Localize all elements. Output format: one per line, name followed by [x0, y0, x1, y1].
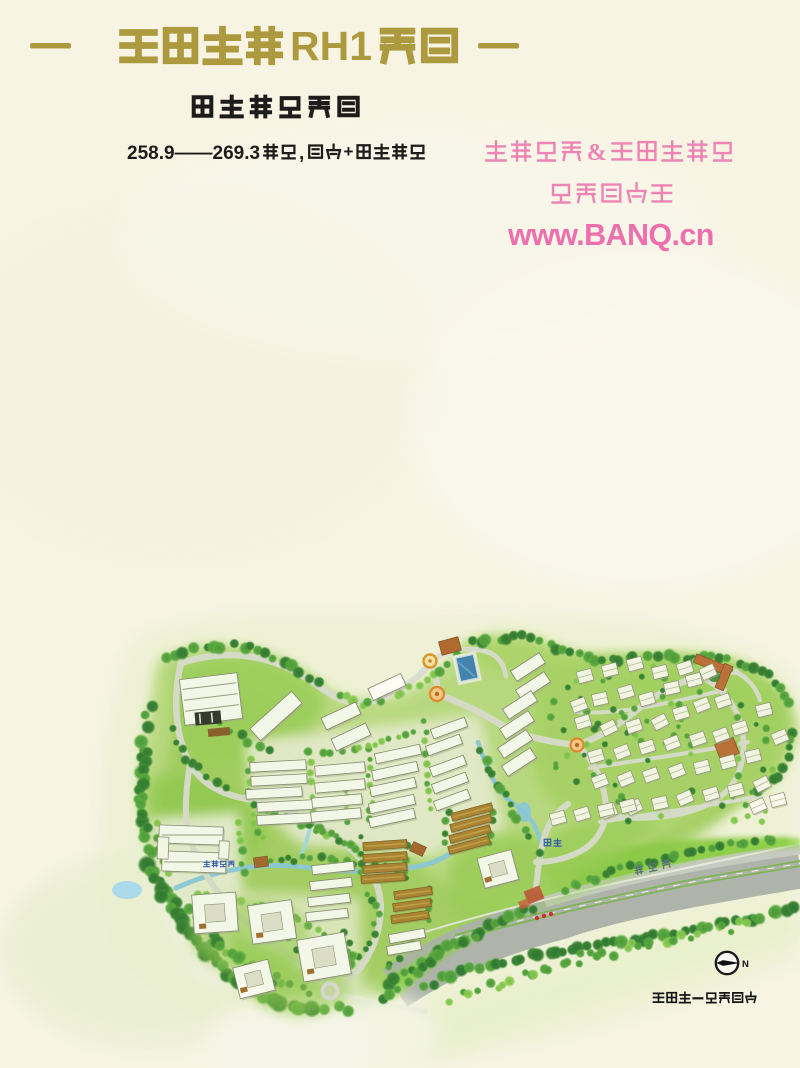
svg-text:&: & — [587, 140, 607, 166]
svg-text:258.9——269.3: 258.9——269.3 — [127, 143, 260, 164]
svg-text:www.BANQ.cn: www.BANQ.cn — [507, 218, 714, 252]
svg-text:,: , — [299, 143, 304, 164]
svg-text:N: N — [742, 959, 749, 970]
svg-text:RH1: RH1 — [290, 23, 372, 69]
svg-text:+: + — [344, 142, 354, 161]
